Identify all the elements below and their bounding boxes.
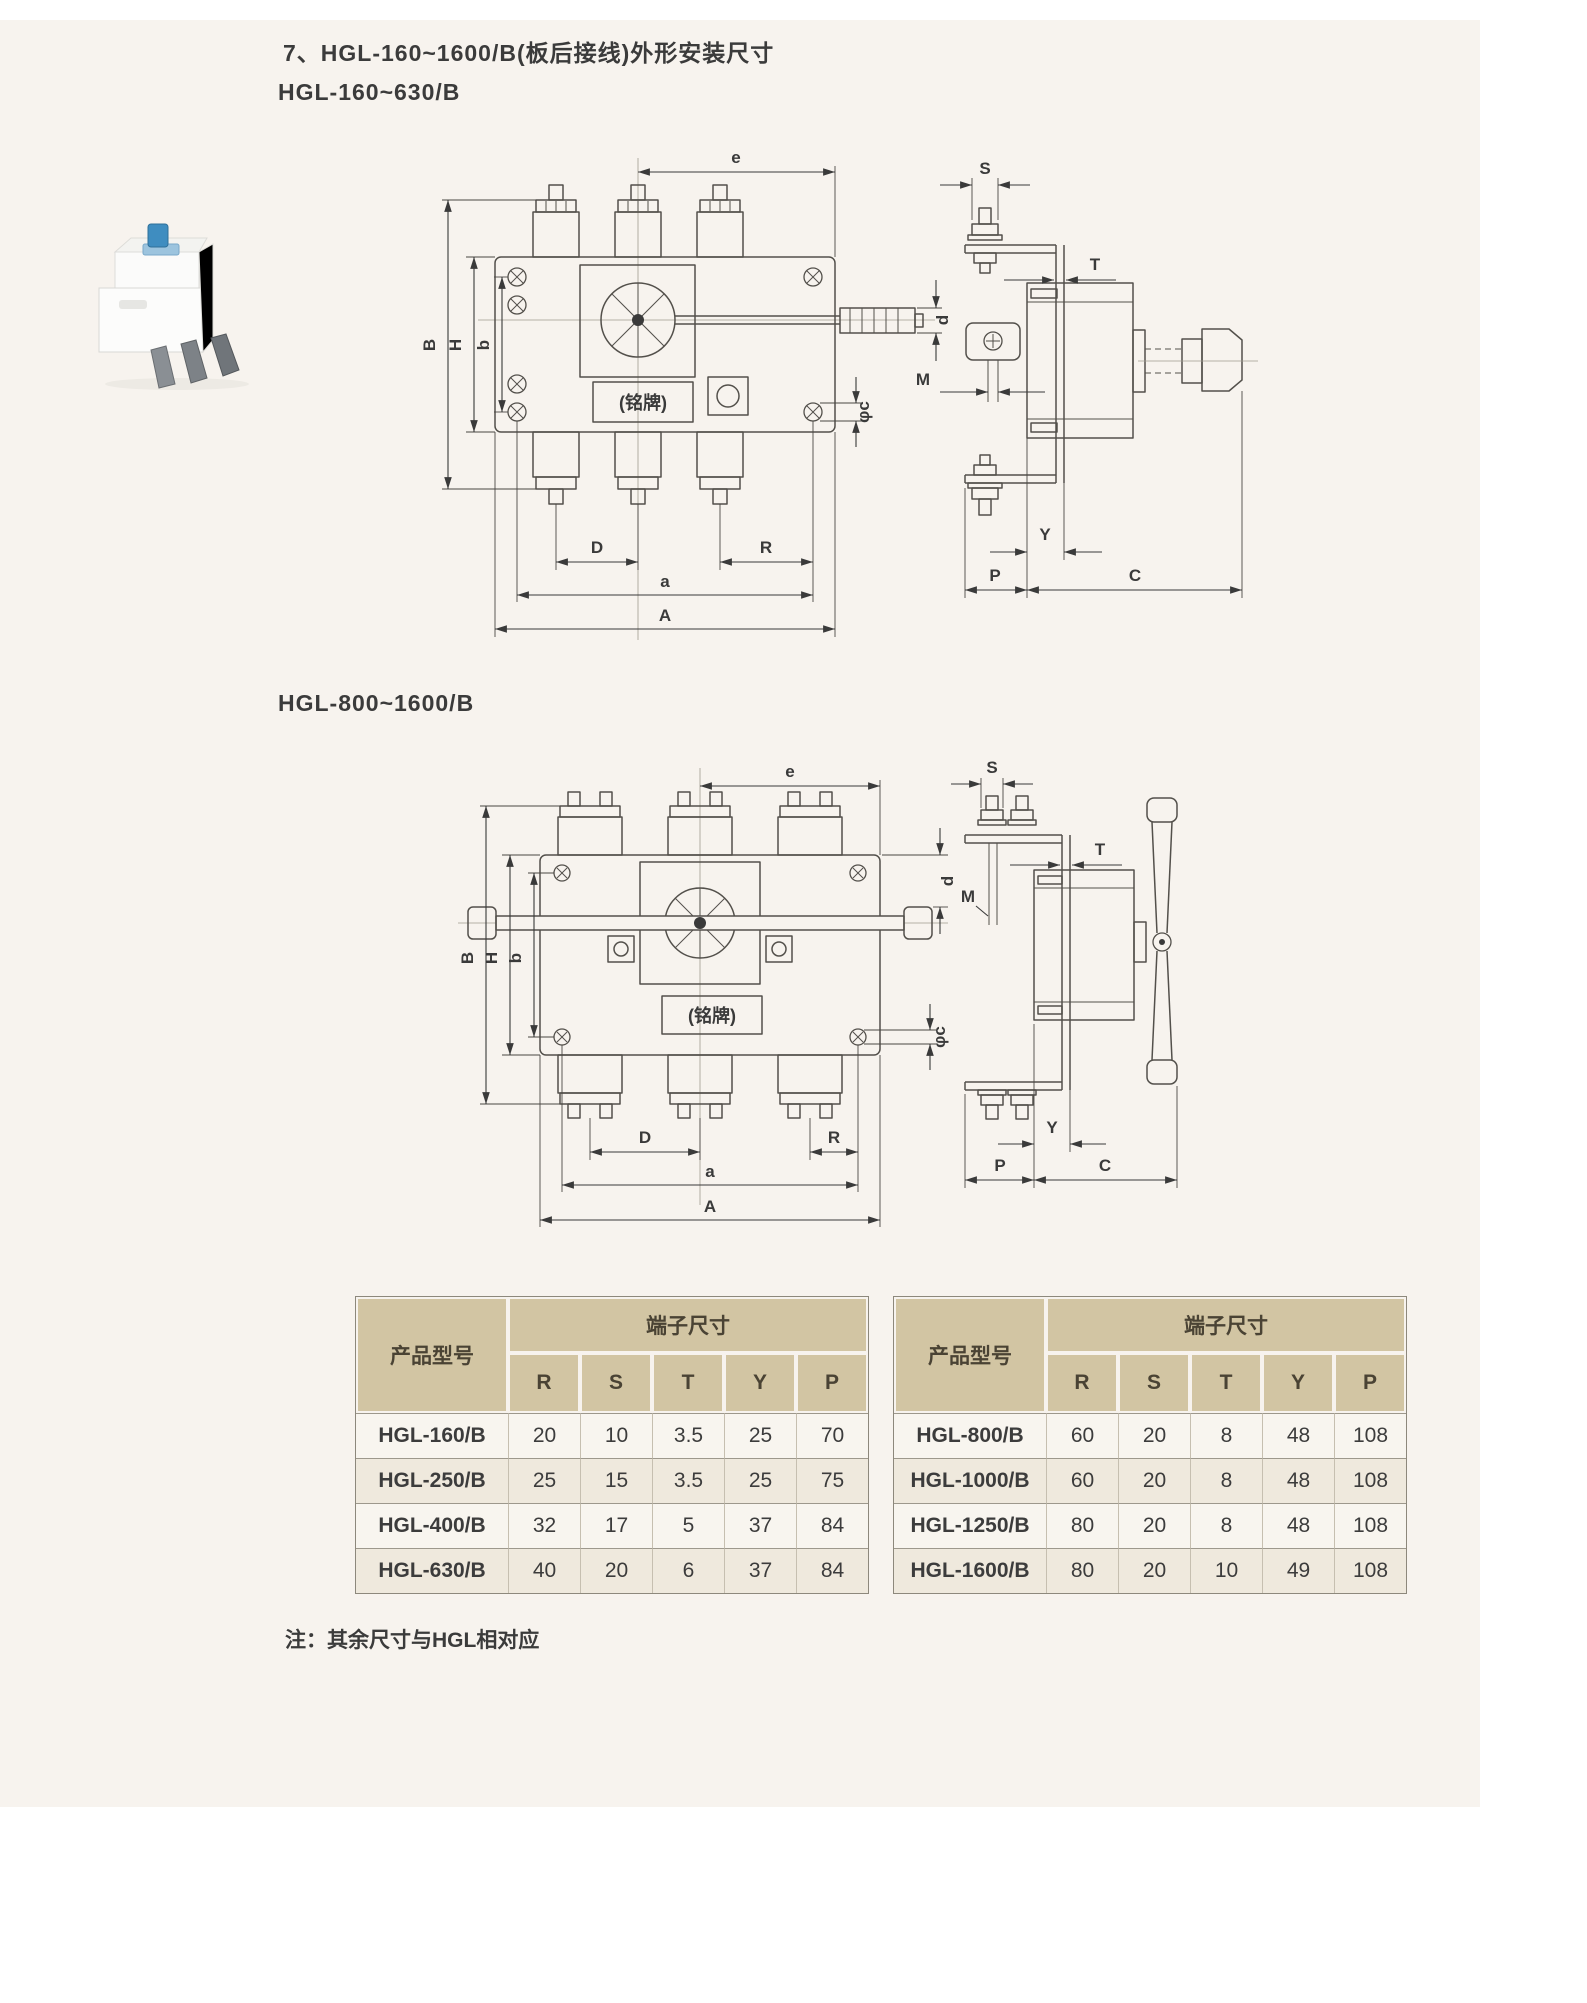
dim-label-P: P [989,566,1000,585]
value-cell: 48 [1262,1413,1334,1458]
value-cell: 108 [1334,1548,1406,1593]
dim-label-A: A [704,1197,716,1216]
value-cell: 49 [1262,1548,1334,1593]
dim-label-d: d [938,876,957,886]
dim-label-C: C [1099,1156,1111,1175]
dim-label-b: b [474,340,493,350]
front-dimensions: B H b e d φc [420,148,952,637]
value-cell: 37 [724,1503,796,1548]
table-row: HGL-160/B 20 10 3.5 25 70 [356,1413,868,1458]
dim-label-T: T [1090,255,1101,274]
value-cell: 20 [1118,1548,1190,1593]
nameplate-text: (铭牌) [688,1005,736,1026]
value-cell: 25 [508,1458,580,1503]
column-header-S: S [580,1353,652,1413]
dim-label-phic: φc [854,401,873,423]
dim-label-d: d [933,315,952,325]
side-body [1027,283,1258,438]
footnote: 注：其余尺寸与HGL相对应 [285,1624,539,1654]
table-row: HGL-1600/B 80 20 10 49 108 [894,1548,1406,1593]
column-header-R: R [508,1353,580,1413]
dim-label-H: H [446,339,465,351]
dim-label-B: B [458,952,477,964]
table-row: HGL-1000/B 60 20 8 48 108 [894,1458,1406,1503]
side-view: S T M Y P C [951,758,1177,1188]
dim-label-e: e [731,148,740,167]
dim-label-phic: φc [930,1026,949,1048]
panel-bolts [978,796,1036,1119]
value-cell: 3.5 [652,1413,724,1458]
dim-label-M: M [961,887,975,906]
value-cell: 8 [1190,1503,1262,1548]
value-cell: 48 [1262,1458,1334,1503]
side-body [1034,870,1146,1020]
dim-label-R: R [828,1128,840,1147]
value-cell: 80 [1046,1548,1118,1593]
value-cell: 60 [1046,1413,1118,1458]
dim-label-C: C [1129,566,1141,585]
model-cell: HGL-630/B [356,1548,508,1593]
table-row: HGL-1250/B 80 20 8 48 108 [894,1503,1406,1548]
side-view: S T M Y P C [916,159,1258,598]
section1-title: HGL-160~630/B [278,79,460,106]
value-cell: 108 [1334,1413,1406,1458]
value-cell: 8 [1190,1458,1262,1503]
dim-label-b: b [506,953,525,963]
column-header-Y: Y [724,1353,796,1413]
table-row: HGL-630/B 40 20 6 37 84 [356,1548,868,1593]
nameplate-text: (铭牌) [619,392,667,413]
table-row: HGL-250/B 25 15 3.5 25 75 [356,1458,868,1503]
value-cell: 25 [724,1413,796,1458]
column-header-R: R [1046,1353,1118,1413]
value-cell: 48 [1262,1503,1334,1548]
front-view: (铭牌) B H b e d φc [458,762,957,1227]
column-header-Y: Y [1262,1353,1334,1413]
value-cell: 75 [796,1458,868,1503]
technical-drawing-hgl800-1600: (铭牌) B H b e d φc [400,740,1320,1240]
catalog-page: 7、HGL-160~1600/B(板后接线)外形安装尺寸 HGL-160~630… [0,0,1587,2003]
table-row: HGL-800/B 60 20 8 48 108 [894,1413,1406,1458]
dim-label-e: e [785,762,794,781]
value-cell: 60 [1046,1458,1118,1503]
value-cell: 40 [508,1548,580,1593]
dim-label-H: H [482,952,501,964]
column-header-terminal: 端子尺寸 [1046,1297,1406,1353]
dim-label-Y: Y [1039,525,1051,544]
value-cell: 10 [1190,1548,1262,1593]
value-cell: 3.5 [652,1458,724,1503]
value-cell: 15 [580,1458,652,1503]
section2-title: HGL-800~1600/B [278,690,474,717]
column-header-P: P [796,1353,868,1413]
model-cell: HGL-1000/B [894,1458,1046,1503]
terminal-size-table-right: 产品型号 端子尺寸 R S T Y P HGL-800/B 60 20 8 48… [893,1296,1407,1594]
value-cell: 5 [652,1503,724,1548]
value-cell: 108 [1334,1503,1406,1548]
value-cell: 80 [1046,1503,1118,1548]
terminal-size-table-left: 产品型号 端子尺寸 R S T Y P HGL-160/B 20 10 3.5 … [355,1296,869,1594]
value-cell: 20 [580,1548,652,1593]
page-title: 7、HGL-160~1600/B(板后接线)外形安装尺寸 [283,34,774,68]
front-dimensions: B H b e d φc [458,762,957,1227]
photo-shadow [105,378,249,390]
value-cell: 25 [724,1458,796,1503]
column-header-T: T [1190,1353,1262,1413]
value-cell: 84 [796,1548,868,1593]
value-cell: 20 [1118,1503,1190,1548]
value-cell: 32 [508,1503,580,1548]
model-cell: HGL-400/B [356,1503,508,1548]
value-cell: 108 [1334,1458,1406,1503]
dim-label-P: P [994,1156,1005,1175]
shaft-support [966,323,1020,402]
value-cell: 17 [580,1503,652,1548]
dim-label-M: M [916,370,930,389]
dim-label-a: a [660,572,670,591]
value-cell: 20 [1118,1413,1190,1458]
value-cell: 10 [580,1413,652,1458]
value-cell: 20 [1118,1458,1190,1503]
value-cell: 84 [796,1503,868,1548]
model-cell: HGL-1250/B [894,1503,1046,1548]
dim-label-S: S [979,159,990,178]
value-cell: 70 [796,1413,868,1458]
dim-label-D: D [591,538,603,557]
panel-bolts [968,208,1002,515]
dim-label-R: R [760,538,772,557]
side-dimensions: S T M Y P C [951,758,1177,1188]
product-photo [85,200,265,390]
model-cell: HGL-250/B [356,1458,508,1503]
dim-label-B: B [420,339,439,351]
dim-label-Y: Y [1046,1118,1058,1137]
model-cell: HGL-160/B [356,1413,508,1458]
model-cell: HGL-1600/B [894,1548,1046,1593]
value-cell: 6 [652,1548,724,1593]
column-header-T: T [652,1353,724,1413]
dim-label-D: D [639,1128,651,1147]
dim-label-a: a [705,1162,715,1181]
column-header-P: P [1334,1353,1406,1413]
dim-label-A: A [659,606,671,625]
dim-label-S: S [986,758,997,777]
column-header-model: 产品型号 [894,1297,1046,1413]
model-cell: HGL-800/B [894,1413,1046,1458]
front-view: (铭牌) B H b e d [420,148,952,640]
column-header-model: 产品型号 [356,1297,508,1413]
column-header-terminal: 端子尺寸 [508,1297,868,1353]
butterfly-handle [1147,798,1177,1084]
value-cell: 37 [724,1548,796,1593]
table-row: HGL-400/B 32 17 5 37 84 [356,1503,868,1548]
dim-label-T: T [1095,840,1106,859]
value-cell: 20 [508,1413,580,1458]
column-header-S: S [1118,1353,1190,1413]
technical-drawing-hgl160-630: (铭牌) B H b e d [390,130,1290,650]
side-dimensions: S T M Y P C [916,159,1242,598]
value-cell: 8 [1190,1413,1262,1458]
